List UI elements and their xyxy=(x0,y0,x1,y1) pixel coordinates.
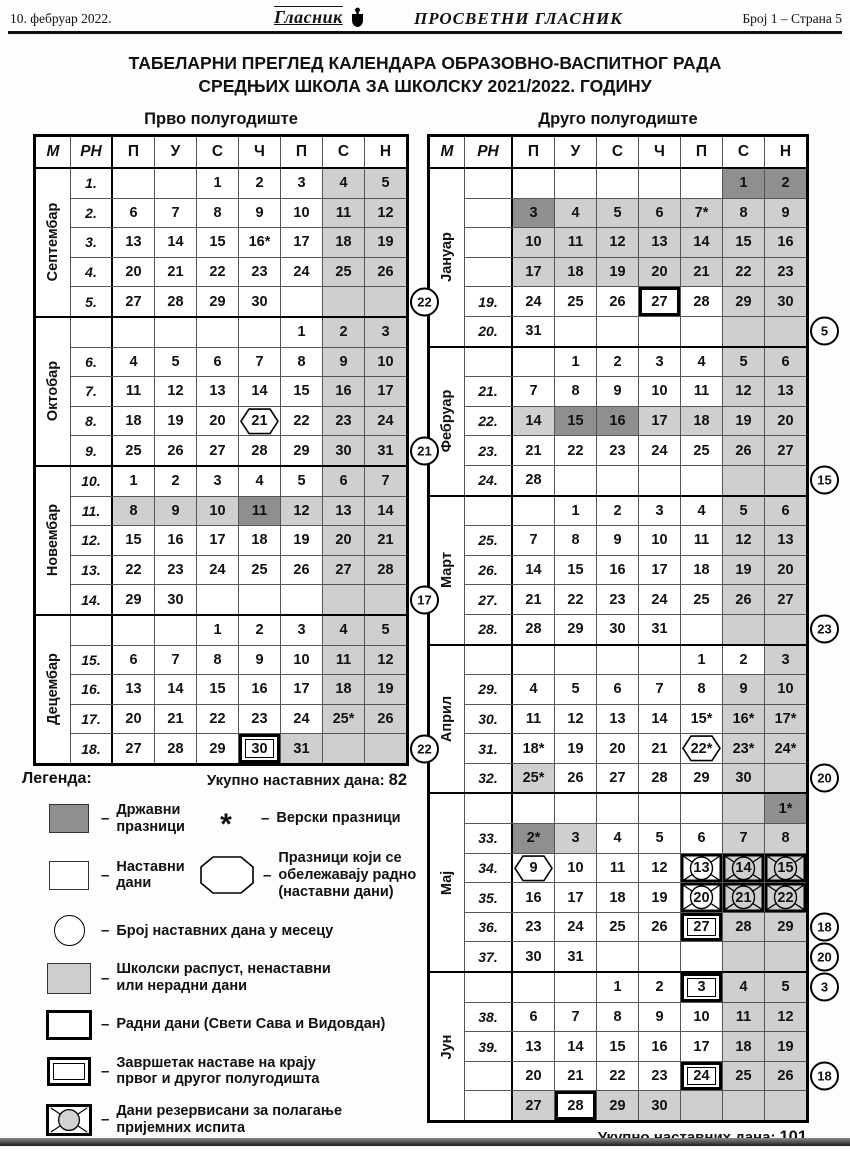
day-cell: 6 xyxy=(113,646,155,675)
page-running-head: 10. фебруар 2022. Гласник ПРОСВЕТНИ ГЛАС… xyxy=(10,5,842,31)
day-cell xyxy=(155,616,197,645)
legend-row: –Радни дани (Свети Сава и Видовдан) xyxy=(22,1010,422,1040)
month-block: Новембар10.123456711.89101112131412.1516… xyxy=(36,467,406,616)
second-semester-title: Друго полугодиште xyxy=(427,110,809,129)
day-number: 27 xyxy=(693,919,709,935)
day-cell: 25 xyxy=(555,287,597,316)
day-cell xyxy=(197,318,239,347)
day-number: 1 xyxy=(613,979,621,995)
day-number: 25* xyxy=(333,711,355,727)
gazette-logo-text: Гласник xyxy=(272,7,345,28)
day-number: 7 xyxy=(529,383,537,399)
day-cell: 20 xyxy=(597,734,639,763)
day-number: 11 xyxy=(736,1009,751,1025)
weeks: 1236.456789107.111213141516178.181920212… xyxy=(71,318,406,465)
legend-item: *–Верски празници xyxy=(200,810,422,827)
week-row: 123456 xyxy=(465,497,806,527)
day-cell: 14 xyxy=(723,854,765,883)
day-cell: 10 xyxy=(281,199,323,228)
day-cell: 6 xyxy=(597,675,639,704)
day-cell: 22 xyxy=(765,883,806,912)
day-number: 16 xyxy=(167,532,183,548)
day-cell: 17 xyxy=(197,526,239,555)
week-row: 8.18192021222324 xyxy=(71,407,406,437)
day-cell: 8 xyxy=(597,1003,639,1032)
day-number: 22 xyxy=(567,592,583,608)
day-number: 29 xyxy=(567,621,583,637)
day-cell xyxy=(555,317,597,346)
day-number: 15* xyxy=(691,711,713,727)
day-number: 9 xyxy=(613,532,621,548)
day-cell: 5 xyxy=(723,348,765,377)
day-cell: 27 xyxy=(765,436,806,465)
day-cell: 13 xyxy=(597,705,639,734)
day-cell xyxy=(639,794,681,823)
day-cell: 8 xyxy=(113,497,155,526)
day-number: 19 xyxy=(567,741,583,757)
week-row: 21.78910111213 xyxy=(465,377,806,407)
legend-text-line: Дани резервисани за полагање xyxy=(116,1103,342,1120)
day-number: 29 xyxy=(693,770,709,786)
month-name: Јануар xyxy=(439,232,455,282)
week-row: 34567*89 xyxy=(465,199,806,229)
day-number: 8 xyxy=(781,830,789,846)
day-number: 23* xyxy=(733,741,755,757)
day-number: 23 xyxy=(651,1068,667,1084)
day-cell xyxy=(681,317,723,346)
day-cell: 28 xyxy=(681,287,723,316)
day-cell: 21 xyxy=(365,526,406,555)
day-number: 23 xyxy=(777,264,793,280)
day-number: 29 xyxy=(609,1098,625,1114)
day-cell: 7* xyxy=(681,199,723,228)
legend-item: –Државнипразници xyxy=(22,802,200,835)
day-cell: 3 xyxy=(765,646,806,675)
day-number: 19 xyxy=(377,234,393,250)
day-number: 21 xyxy=(377,532,393,548)
day-cell: 10 xyxy=(639,377,681,406)
day-cell: 5 xyxy=(555,675,597,704)
legend-text: Завршетак наставе на крајупрвог и другог… xyxy=(116,1055,319,1088)
week-row: 123 xyxy=(71,318,406,348)
day-number: 28 xyxy=(651,770,667,786)
legend-text-line: Државни xyxy=(116,802,185,819)
day-number: 3 xyxy=(297,175,305,191)
day-cell: 12 xyxy=(155,377,197,406)
legend-text-line: Верски празници xyxy=(276,810,400,827)
day-cell: 23 xyxy=(765,258,806,287)
day-number: 10 xyxy=(777,681,793,697)
day-number: 30 xyxy=(735,770,751,786)
day-number: 31 xyxy=(651,621,667,637)
day-cell: 28 xyxy=(723,913,765,942)
day-number: 5 xyxy=(655,830,663,846)
day-cell: 4 xyxy=(681,348,723,377)
day-cell: 5 xyxy=(365,616,406,645)
day-cell: 9 xyxy=(513,854,555,883)
day-number: 3 xyxy=(655,354,663,370)
day-number: 1 xyxy=(213,622,221,638)
day-number: 10 xyxy=(209,503,225,519)
day-cell: 28 xyxy=(365,556,406,585)
day-cell: 22* xyxy=(681,734,723,763)
day-cell: 1 xyxy=(723,169,765,198)
day-cell xyxy=(639,646,681,675)
day-cell xyxy=(681,942,723,971)
day-cell xyxy=(597,646,639,675)
day-number: 17 xyxy=(651,413,667,429)
day-number: 30 xyxy=(251,741,267,757)
day-cell: 25 xyxy=(723,1062,765,1091)
day-cell xyxy=(723,942,765,971)
week-number-cell: 36. xyxy=(465,913,513,942)
day-number: 4 xyxy=(697,503,705,519)
day-cell: 24 xyxy=(281,258,323,287)
day-cell: 8 xyxy=(281,348,323,377)
week-number-cell xyxy=(465,1091,513,1120)
day-number: 18 xyxy=(125,413,141,429)
day-cell: 9 xyxy=(239,199,281,228)
week-row: 31.18*19202122*23*24* xyxy=(465,734,806,764)
day-number: 4 xyxy=(571,205,579,221)
legend-dash: – xyxy=(101,1016,109,1033)
day-number: 8 xyxy=(739,205,747,221)
week-row: 27.21222324252627 xyxy=(465,585,806,615)
day-cell: 5 xyxy=(155,348,197,377)
day-cell: 20 xyxy=(113,258,155,287)
day-number: 16 xyxy=(609,413,625,429)
day-number: 10 xyxy=(651,532,667,548)
day-cell: 27 xyxy=(639,287,681,316)
day-number: 2 xyxy=(781,175,789,191)
day-number: 22* xyxy=(691,741,713,757)
day-cell: 31 xyxy=(281,734,323,763)
day-number: 19 xyxy=(777,1039,793,1055)
legend-text-line: Школски распуст, ненаставни xyxy=(116,961,330,978)
day-cell: 12 xyxy=(281,497,323,526)
day-number: 22 xyxy=(609,1068,625,1084)
day-number: 14 xyxy=(167,681,183,697)
week-row: 22.14151617181920 xyxy=(465,407,806,437)
day-number: 5 xyxy=(781,979,789,995)
col-header-week-number: РН xyxy=(465,137,513,167)
day-number: 3 xyxy=(529,205,537,221)
day-cell: 28 xyxy=(513,615,555,644)
day-number: 18 xyxy=(735,1039,751,1055)
day-number: 10 xyxy=(651,383,667,399)
day-number: 28 xyxy=(735,919,751,935)
day-number: 23 xyxy=(251,264,267,280)
day-cell: 16* xyxy=(723,705,765,734)
day-cell: 4 xyxy=(239,467,281,496)
day-cell: 4 xyxy=(323,169,365,198)
day-cell: 17 xyxy=(555,883,597,912)
week-number-cell: 8. xyxy=(71,407,113,436)
day-cell: 5 xyxy=(597,199,639,228)
day-cell: 2 xyxy=(155,467,197,496)
day-number: 9 xyxy=(255,205,263,221)
week-row: 11.891011121314 xyxy=(71,497,406,527)
week-number-cell: 39. xyxy=(465,1032,513,1061)
day-number: 3 xyxy=(297,622,305,638)
day-cell: 31 xyxy=(639,615,681,644)
day-cell: 2 xyxy=(239,169,281,198)
day-cell: 19 xyxy=(555,734,597,763)
day-cell: 22 xyxy=(197,258,239,287)
legend-text-line: празници xyxy=(116,819,185,836)
day-cell: 31 xyxy=(513,317,555,346)
day-cell: 10 xyxy=(765,675,806,704)
legend-item: –Наставнидани xyxy=(22,859,200,892)
day-cell: 19 xyxy=(639,883,681,912)
day-cell: 22 xyxy=(555,585,597,614)
day-number: 21 xyxy=(567,1068,583,1084)
day-number: 16 xyxy=(525,890,541,906)
week-number-cell: 14. xyxy=(71,585,113,614)
month-block: Април12329.4567891030.1112131415*16*17*3… xyxy=(430,646,806,795)
day-number: 14 xyxy=(693,234,709,250)
monthly-teaching-days-circle: 22 xyxy=(410,287,439,316)
day-number: 8 xyxy=(213,205,221,221)
day-number: 12 xyxy=(777,1009,793,1025)
week-row: 20.315 xyxy=(465,317,806,346)
day-cell: 17 xyxy=(513,258,555,287)
day-cell: 24 xyxy=(555,913,597,942)
week-number-cell: 9. xyxy=(71,436,113,465)
day-cell: 10 xyxy=(639,526,681,555)
week-row: 4.20212223242526 xyxy=(71,258,406,288)
day-number: 21 xyxy=(651,741,667,757)
day-number: 7 xyxy=(255,354,263,370)
day-cell: 26 xyxy=(597,287,639,316)
day-cell xyxy=(597,317,639,346)
month-name: Март xyxy=(439,552,455,588)
day-cell xyxy=(513,646,555,675)
day-number: 6 xyxy=(213,354,221,370)
week-number-cell: 6. xyxy=(71,348,113,377)
day-cell: 22 xyxy=(597,1062,639,1091)
col-header-month: М xyxy=(36,137,71,167)
day-cell: 17 xyxy=(281,675,323,704)
day-cell: 21 xyxy=(513,585,555,614)
day-cell: 11 xyxy=(513,705,555,734)
day-cell: 17* xyxy=(765,705,806,734)
day-cell: 17 xyxy=(639,407,681,436)
end-of-semester-box-icon xyxy=(47,1057,91,1086)
day-number: 20 xyxy=(209,413,225,429)
religious-holiday-asterisk-icon: * xyxy=(220,818,232,832)
col-header-day: У xyxy=(155,137,197,167)
day-cell: 14 xyxy=(155,228,197,257)
day-cell: 3 xyxy=(281,616,323,645)
day-number: 30 xyxy=(651,1098,667,1114)
col-header-day: С xyxy=(597,137,639,167)
day-number: 24 xyxy=(293,711,309,727)
day-cell: 9 xyxy=(765,199,806,228)
week-number-cell: 23. xyxy=(465,436,513,465)
day-cell: 29 xyxy=(723,287,765,316)
day-number: 7 xyxy=(571,1009,579,1025)
week-row: 6.45678910 xyxy=(71,348,406,378)
day-number: 6 xyxy=(529,1009,537,1025)
day-cell: 13 xyxy=(113,228,155,257)
legend-item: –Радни дани (Свети Сава и Видовдан) xyxy=(22,1010,422,1040)
legend-text: Број наставних дана у месецу xyxy=(116,923,333,940)
day-cell: 10 xyxy=(681,1003,723,1032)
week-number-cell: 25. xyxy=(465,526,513,555)
day-cell: 22 xyxy=(281,407,323,436)
day-cell: 25* xyxy=(323,705,365,734)
day-cell: 12 xyxy=(765,1003,806,1032)
day-cell xyxy=(281,585,323,614)
day-number: 20 xyxy=(335,532,351,548)
day-cell: 6 xyxy=(113,199,155,228)
week-row: 17.202122232425*26 xyxy=(71,705,406,735)
day-cell xyxy=(155,169,197,198)
day-cell: 21 xyxy=(513,436,555,465)
day-number: 20 xyxy=(125,264,141,280)
legend-text: Наставнидани xyxy=(116,859,184,892)
day-cell: 13 xyxy=(323,497,365,526)
day-number: 14 xyxy=(651,711,667,727)
day-cell: 24 xyxy=(365,407,406,436)
day-number: 28 xyxy=(525,621,541,637)
day-number: 28 xyxy=(693,294,709,310)
legend: Легенда: –Државнипразници*–Верски празни… xyxy=(22,770,422,1151)
day-cell: 6 xyxy=(681,824,723,853)
col-header-day: Ч xyxy=(239,137,281,167)
week-number-cell xyxy=(465,228,513,257)
monthly-teaching-days-circle: 22 xyxy=(410,734,439,763)
day-cell: 17 xyxy=(639,556,681,585)
page-bottom-scan-edge xyxy=(0,1138,850,1146)
legend-item: –Број наставних дана у месецу xyxy=(22,915,422,946)
day-number: 21 xyxy=(525,592,541,608)
thick-box-icon-holder xyxy=(46,1010,92,1040)
day-cell: 12 xyxy=(639,854,681,883)
week-row: 16.13141516171819 xyxy=(71,675,406,705)
month-label: Септембар xyxy=(36,169,71,316)
legend-row: –Број наставних дана у месецу xyxy=(22,915,422,946)
week-row: 38.6789101112 xyxy=(465,1003,806,1033)
day-cell: 3 xyxy=(281,169,323,198)
week-row: 29.45678910 xyxy=(465,675,806,705)
legend-text: Школски распуст, ненаставниили нерадни д… xyxy=(116,961,330,994)
day-cell xyxy=(113,616,155,645)
day-number: 8 xyxy=(297,354,305,370)
day-number: 24 xyxy=(525,294,541,310)
day-cell: 20 xyxy=(681,883,723,912)
day-number: 6 xyxy=(697,830,705,846)
day-cell xyxy=(681,615,723,644)
day-cell xyxy=(597,794,639,823)
day-cell: 11 xyxy=(323,199,365,228)
month-name: Новембар xyxy=(45,504,61,576)
week-row: 12 xyxy=(465,169,806,199)
day-cell xyxy=(513,794,555,823)
day-cell: 10 xyxy=(365,348,406,377)
second-semester-calendar-table: МРНПУСЧПСНЈануар1234567*8910111213141516… xyxy=(427,134,809,1123)
day-number: 26 xyxy=(777,1068,793,1084)
day-cell: 23 xyxy=(513,913,555,942)
day-cell xyxy=(765,1091,806,1120)
day-cell xyxy=(597,466,639,495)
day-cell: 18 xyxy=(239,526,281,555)
day-cell: 17 xyxy=(365,377,406,406)
day-number: 1 xyxy=(297,324,305,340)
col-header-month: М xyxy=(430,137,465,167)
week-number-cell: 2. xyxy=(71,199,113,228)
coat-of-arms-icon xyxy=(350,7,365,28)
day-cell: 21 xyxy=(723,883,765,912)
day-number: 12 xyxy=(293,503,309,519)
day-number: 17 xyxy=(293,681,309,697)
day-cell: 2* xyxy=(513,824,555,853)
day-number: 22 xyxy=(567,443,583,459)
day-number: 5 xyxy=(381,175,389,191)
legend-text-line: Радни дани (Свети Сава и Видовдан) xyxy=(116,1016,385,1033)
day-number: 2 xyxy=(339,324,347,340)
week-number-cell xyxy=(465,169,513,198)
day-cell xyxy=(681,1091,723,1120)
legend-row: –Наставнидани–Празници који сеобележавај… xyxy=(22,850,422,900)
monthly-teaching-days-circle: 18 xyxy=(810,913,839,942)
week-number-cell: 24. xyxy=(465,466,513,495)
day-number: 26 xyxy=(735,443,751,459)
day-cell: 9 xyxy=(323,348,365,377)
weeks: 1234567*89101112131415161718192021222319… xyxy=(465,169,806,346)
calendar-header-row: МРНПУСЧПСН xyxy=(36,137,406,169)
month-name: Април xyxy=(439,696,455,742)
day-number: 11 xyxy=(336,652,351,668)
day-cell: 1 xyxy=(681,646,723,675)
legend-dash: – xyxy=(101,867,109,884)
day-cell xyxy=(765,764,806,793)
legend-row: –Дани резервисани за полагањепријемних и… xyxy=(22,1103,422,1136)
legend-text-line: Празници који се xyxy=(278,850,416,867)
week-number-cell: 37. xyxy=(465,942,513,971)
legend-item: –Завршетак наставе на крајупрвог и друго… xyxy=(22,1055,422,1088)
day-number: 12 xyxy=(377,205,393,221)
day-cell: 3 xyxy=(197,467,239,496)
day-cell xyxy=(555,794,597,823)
day-cell: 29 xyxy=(681,764,723,793)
day-number: 2 xyxy=(613,354,621,370)
day-number: 29 xyxy=(125,592,141,608)
day-cell: 25 xyxy=(323,258,365,287)
day-number: 23 xyxy=(609,443,625,459)
day-cell xyxy=(765,615,806,644)
day-cell: 24 xyxy=(639,585,681,614)
legend-text-line: Наставни xyxy=(116,859,184,876)
week-number-cell: 10. xyxy=(71,467,113,496)
day-cell: 9 xyxy=(597,377,639,406)
month-name: Септембар xyxy=(45,203,61,282)
day-number: 6 xyxy=(129,205,137,221)
week-row: 1.12345 xyxy=(71,169,406,199)
day-cell: 21 xyxy=(555,1062,597,1091)
day-number: 6 xyxy=(129,652,137,668)
day-number: 29 xyxy=(209,294,225,310)
day-cell: 23 xyxy=(239,258,281,287)
day-number: 21 xyxy=(251,413,267,429)
day-number: 24 xyxy=(209,562,225,578)
day-number: 10 xyxy=(693,1009,709,1025)
day-cell: 18 xyxy=(681,407,723,436)
day-cell: 13 xyxy=(639,228,681,257)
day-cell: 13 xyxy=(113,675,155,704)
day-cell: 27 xyxy=(765,585,806,614)
